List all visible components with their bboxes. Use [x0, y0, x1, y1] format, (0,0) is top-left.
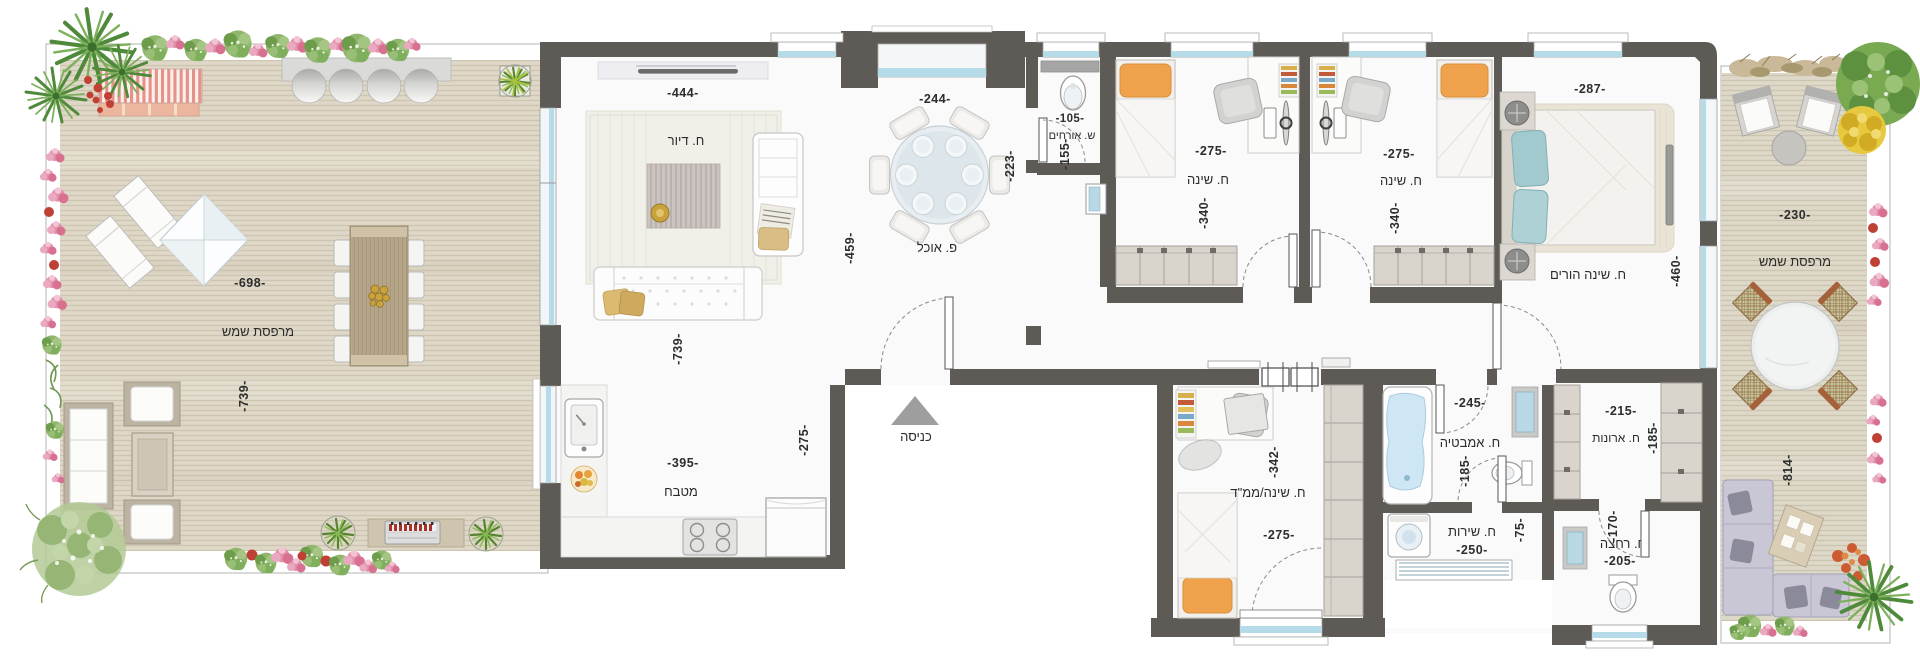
svg-text:ח. דיור: ח. דיור [668, 133, 705, 148]
svg-text:-340-: -340- [1388, 202, 1402, 234]
svg-text:ח. שינה: ח. שינה [1380, 173, 1422, 188]
svg-text:-275-: -275- [797, 424, 811, 456]
svg-text:-275-: -275- [1383, 147, 1415, 161]
svg-text:-105-: -105- [1056, 113, 1085, 125]
svg-text:ש. אורחים: ש. אורחים [1049, 130, 1096, 142]
svg-text:-185-: -185- [1458, 455, 1472, 487]
svg-text:-223-: -223- [1003, 150, 1017, 182]
svg-text:-75-: -75- [1513, 518, 1527, 542]
svg-text:-215-: -215- [1605, 404, 1637, 418]
svg-text:-460-: -460- [1669, 255, 1683, 287]
svg-text:כניסה: כניסה [900, 429, 932, 444]
svg-text:-698-: -698- [234, 276, 266, 290]
svg-text:-245-: -245- [1454, 396, 1486, 410]
svg-text:ח. רחצה: ח. רחצה [1600, 536, 1646, 551]
svg-text:-444-: -444- [667, 86, 699, 100]
svg-text:-814-: -814- [1781, 454, 1795, 486]
svg-text:-155-: -155- [1058, 138, 1072, 170]
svg-text:-275-: -275- [1263, 528, 1295, 542]
svg-text:-275-: -275- [1195, 144, 1227, 158]
svg-text:מרפסת שמש: מרפסת שמש [222, 324, 294, 339]
svg-text:ח. שינה: ח. שינה [1187, 172, 1229, 187]
svg-text:-230-: -230- [1779, 208, 1811, 222]
svg-text:ח. אמבטיה: ח. אמבטיה [1440, 435, 1501, 450]
svg-text:פ. אוכל: פ. אוכל [917, 240, 957, 255]
svg-text:ח. שינה הורים: ח. שינה הורים [1550, 267, 1626, 282]
svg-text:ח. שירות: ח. שירות [1448, 524, 1496, 539]
svg-text:-185-: -185- [1646, 422, 1660, 454]
svg-text:ח. שינה/ממ"ד: ח. שינה/ממ"ד [1230, 485, 1305, 500]
svg-text:-395-: -395- [667, 456, 699, 470]
svg-text:ח. ארונות: ח. ארונות [1592, 431, 1640, 445]
svg-text:-739-: -739- [237, 380, 251, 412]
svg-text:-205-: -205- [1604, 554, 1636, 568]
svg-text:-244-: -244- [919, 92, 951, 106]
svg-text:-342-: -342- [1267, 446, 1281, 478]
svg-text:-739-: -739- [671, 333, 685, 365]
svg-text:-340-: -340- [1197, 197, 1211, 229]
svg-text:-250-: -250- [1456, 543, 1488, 557]
svg-text:-459-: -459- [843, 232, 857, 264]
svg-text:מטבח: מטבח [664, 484, 698, 499]
svg-text:מרפסת שמש: מרפסת שמש [1759, 254, 1831, 269]
svg-text:-287-: -287- [1574, 82, 1606, 96]
